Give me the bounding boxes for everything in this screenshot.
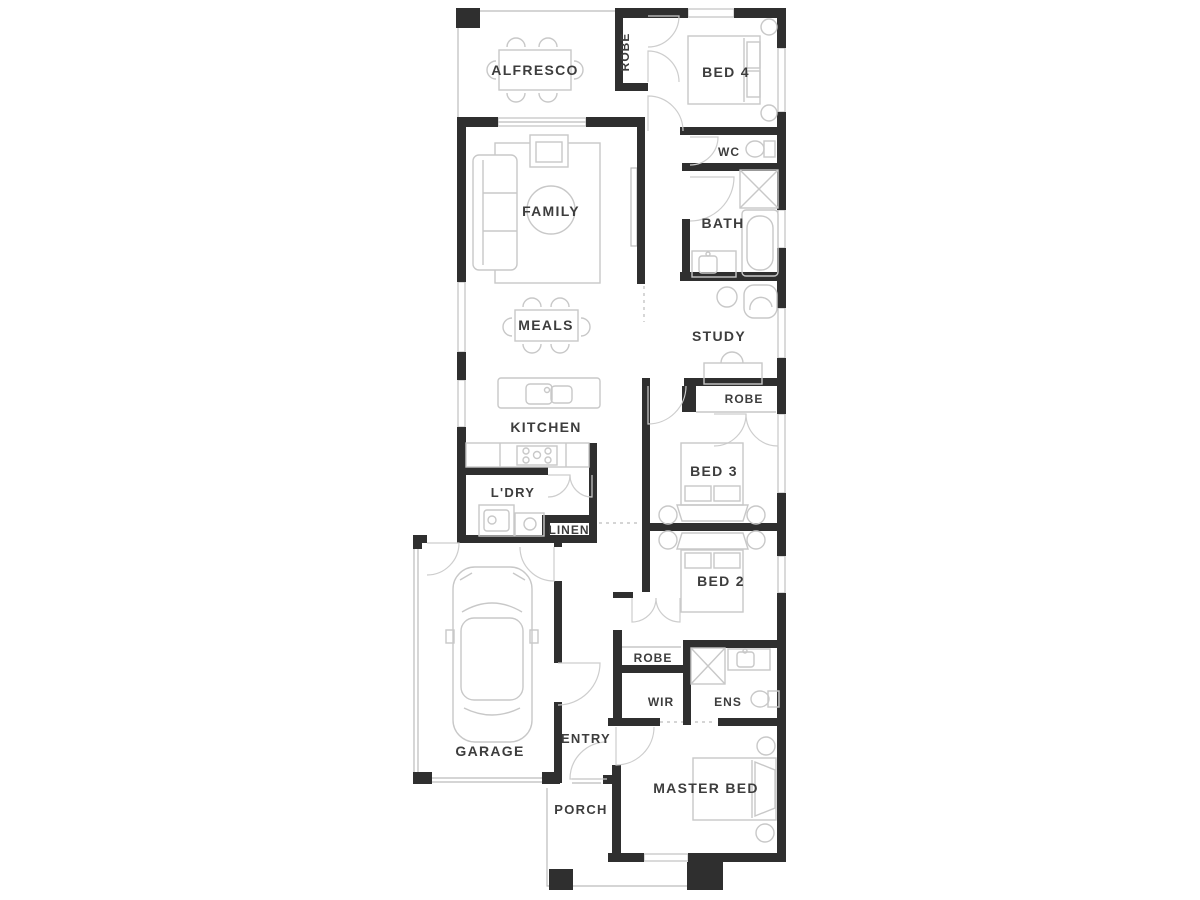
room-label-robe-bed3: ROBE — [725, 392, 764, 406]
room-label-meals: MEALS — [518, 317, 574, 333]
room-label-kitchen: KITCHEN — [510, 419, 581, 435]
room-label-entry: ENTRY — [561, 731, 611, 746]
laundry-door-arc2 — [570, 475, 592, 497]
windows — [458, 9, 785, 861]
room-label-wc: WC — [718, 145, 740, 159]
room-label-bed2: BED 2 — [697, 573, 745, 589]
kitchen-bench-icon — [466, 443, 589, 467]
bed2-icon — [659, 531, 765, 612]
garage-entry-door-arc — [558, 663, 600, 705]
floor-plan-image: ALFRESCO ROBE BED 4 WC BATH FAMILY MEALS… — [0, 0, 1200, 900]
bed3-icon — [659, 443, 765, 524]
room-label-family: FAMILY — [522, 203, 580, 219]
room-label-ens: ENS — [714, 695, 742, 709]
laundry-fixtures-icon — [479, 505, 544, 536]
room-label-master: MASTER BED — [653, 780, 759, 796]
room-label-bed3: BED 3 — [690, 463, 738, 479]
room-label-robe-wir: ROBE — [634, 651, 673, 665]
room-label-robe-bed4: ROBE — [618, 33, 632, 72]
rear-hall-door-arc2 — [656, 598, 680, 622]
robe3-door-arc2 — [746, 414, 778, 446]
bed4-door-arc — [648, 96, 683, 131]
room-label-alfresco: ALFRESCO — [491, 62, 578, 78]
laundry-door-arc — [548, 475, 570, 497]
robe3-door-arc — [714, 414, 746, 446]
master-door-arc — [616, 727, 654, 765]
room-label-study: STUDY — [692, 328, 746, 344]
room-label-linen: LINEN — [549, 523, 590, 537]
front-door-arc — [570, 742, 607, 779]
wc-toilet-icon — [746, 141, 775, 157]
room-label-ldry: L'DRY — [491, 485, 536, 500]
room-label-bed4: BED 4 — [702, 64, 750, 80]
garage-laundry-door-arc — [427, 543, 459, 575]
room-label-wir: WIR — [648, 695, 674, 709]
kitchen-island-icon — [498, 378, 600, 408]
garage-hall-door-arc — [520, 547, 554, 581]
robe4-door-arc2 — [648, 51, 679, 82]
car-icon — [446, 567, 538, 742]
floor-plan-page: ALFRESCO ROBE BED 4 WC BATH FAMILY MEALS… — [0, 0, 1200, 900]
robe4-door-arc — [648, 16, 679, 47]
wc-door-arc — [690, 137, 718, 165]
room-label-porch: PORCH — [554, 802, 607, 817]
room-label-garage: GARAGE — [455, 743, 524, 759]
room-label-bath: BATH — [701, 215, 744, 231]
bed3-door-arc — [648, 386, 686, 424]
rear-hall-door-arc — [632, 598, 656, 622]
